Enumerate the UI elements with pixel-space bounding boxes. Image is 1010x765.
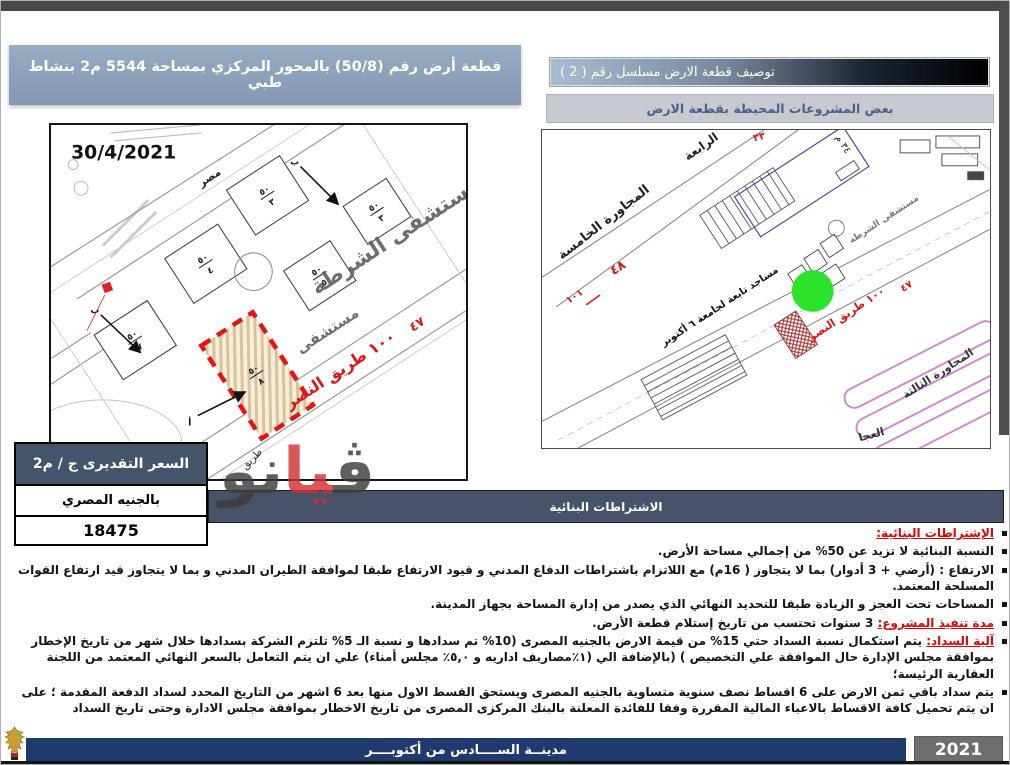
arrow-label: أ <box>188 417 191 429</box>
plot-title-text: قطعة أرض رقم (50/8) بالمحور المركزي بمسا… <box>9 59 521 91</box>
neighborhood-3-label: المجاورة الثالثة <box>900 346 976 402</box>
red-dash <box>586 295 600 305</box>
cadastral-map: ٥٠٣ ٥٠٤ ٥٠٧ ٥٠٥ ٥٠٣ ٥٠٨ <box>49 123 468 481</box>
egypt-eagle-emblem <box>2 725 27 763</box>
description-banner: توصيف قطعة الارض مسلسل رقم ( 2 ) <box>549 57 990 87</box>
right-border-strip <box>999 1 1010 435</box>
street-label-egypt: مصر <box>195 165 223 190</box>
hospital-partial-label: مستشفى <box>293 304 362 357</box>
conditions-list: الإشتراطات البنائية: النسبة البنائية لا … <box>5 525 1010 718</box>
parking-lower <box>641 335 747 420</box>
map-date: 30/4/2021 <box>71 143 176 164</box>
condition-text: الارتفاع : (أرضي + 3 أدوار) بما لا يتجاو… <box>18 563 994 593</box>
partial-bottom-label: العجا <box>857 425 885 444</box>
road-number-101: ١٠١ <box>564 287 585 306</box>
surroundings-map-drawing: المجاورة الخامسة الرابعة مساجد تابعة لجا… <box>542 130 990 448</box>
cadastral-map-drawing: ٥٠٣ ٥٠٤ ٥٠٧ ٥٠٥ ٥٠٣ ٥٠٨ <box>51 125 466 479</box>
road-number-47: ٤٧ <box>407 314 428 335</box>
plot-title-banner: قطعة أرض رقم (50/8) بالمحور المركزي بمسا… <box>9 45 521 105</box>
residential-blocks-pink <box>841 136 990 448</box>
building-conditions-banner-text: الاشتراطات البنائية <box>550 500 663 514</box>
condition-text: المساحات تحت العجز و الزيادة طبقا للتحدي… <box>431 597 994 611</box>
plot-cluster: ٥٠٣ ٥٠٤ ٥٠٧ ٥٠٥ ٥٠٣ ٥٠٨ <box>51 125 466 479</box>
condition-header: آلية السداد: <box>926 634 994 648</box>
highlighted-plot-50-8 <box>201 312 313 438</box>
plot-location-marker <box>792 270 834 312</box>
slide-page: قطعة أرض رقم (50/8) بالمحور المركزي بمسا… <box>0 0 1010 765</box>
footer-city-text: مدينــة الســــادس من أكتوبــــر <box>365 743 567 758</box>
parking-upper <box>700 168 795 249</box>
police-hospital-label-small: مستشفى الشرطة <box>848 194 921 246</box>
price-currency: بالجنيه المصري <box>14 486 208 517</box>
footer-city-bar: مدينــة الســــادس من أكتوبــــر <box>26 738 906 762</box>
red-marker <box>102 282 113 293</box>
condition-text: 3 سنوات تحتسب من تاريخ إستلام قطعة الأرض… <box>592 616 877 630</box>
surrounding-projects-text: بعض المشروعات المحيطة بقطعة الارض <box>647 101 894 116</box>
road-number-48: ٤٨ <box>607 258 628 279</box>
footer-year-box: 2021 <box>914 736 1003 763</box>
description-banner-text: توصيف قطعة الارض مسلسل رقم ( 2 ) <box>560 65 775 80</box>
road-lines <box>542 130 990 448</box>
mosques-label: مساجد تابعة لجامعة ٦ أكتوبر <box>657 263 780 349</box>
condition-header: مدة تنفيذ المشروع: <box>878 616 994 630</box>
condition-header: الإشتراطات البنائية: <box>876 526 994 540</box>
map-small-circle <box>74 181 88 195</box>
condition-item: آلية السداد: يتم استكمال نسبة السداد حتي… <box>9 633 1009 682</box>
condition-text: يتم سداد باقي ثمن الارض على 6 اقساط نصف … <box>22 685 994 715</box>
neighborhood-5-label: المجاورة الخامسة <box>555 182 653 263</box>
price-value: 18475 <box>14 517 208 546</box>
condition-text: النسبة البنائية لا تزيد عن 50% من إجمالي… <box>658 544 994 558</box>
condition-item: مدة تنفيذ المشروع: 3 سنوات تحتسب من تاري… <box>9 615 1009 631</box>
condition-item: المساحات تحت العجز و الزيادة طبقا للتحدي… <box>9 596 1009 612</box>
top-border-strip <box>1 1 1010 11</box>
condition-item: يتم سداد باقي ثمن الارض على 6 اقساط نصف … <box>9 684 1009 717</box>
price-table: السعر التقديرى ج / م2 بالجنيه المصري 184… <box>14 442 208 546</box>
surrounding-projects-banner: بعض المشروعات المحيطة بقطعة الارض <box>546 94 994 123</box>
price-header: السعر التقديرى ج / م2 <box>14 442 208 486</box>
surroundings-map: المجاورة الخامسة الرابعة مساجد تابعة لجا… <box>541 129 991 449</box>
building-conditions-banner: الاشتراطات البنائية <box>208 490 1004 523</box>
road-number-47: ٤٧ <box>899 279 915 295</box>
condition-text: يتم استكمال نسبة السداد حتي 15% من قيمة … <box>31 634 994 681</box>
condition-item: الارتفاع : (أرضي + 3 أدوار) بما لا يتجاو… <box>9 562 1009 595</box>
road-small-label: طريق <box>240 447 265 472</box>
neighborhood-4-label: الرابعة <box>681 130 721 164</box>
road-number-33: ٣٣ <box>752 131 767 145</box>
bottom-border-line <box>1 761 1010 764</box>
arrow-label: ب <box>290 158 299 168</box>
